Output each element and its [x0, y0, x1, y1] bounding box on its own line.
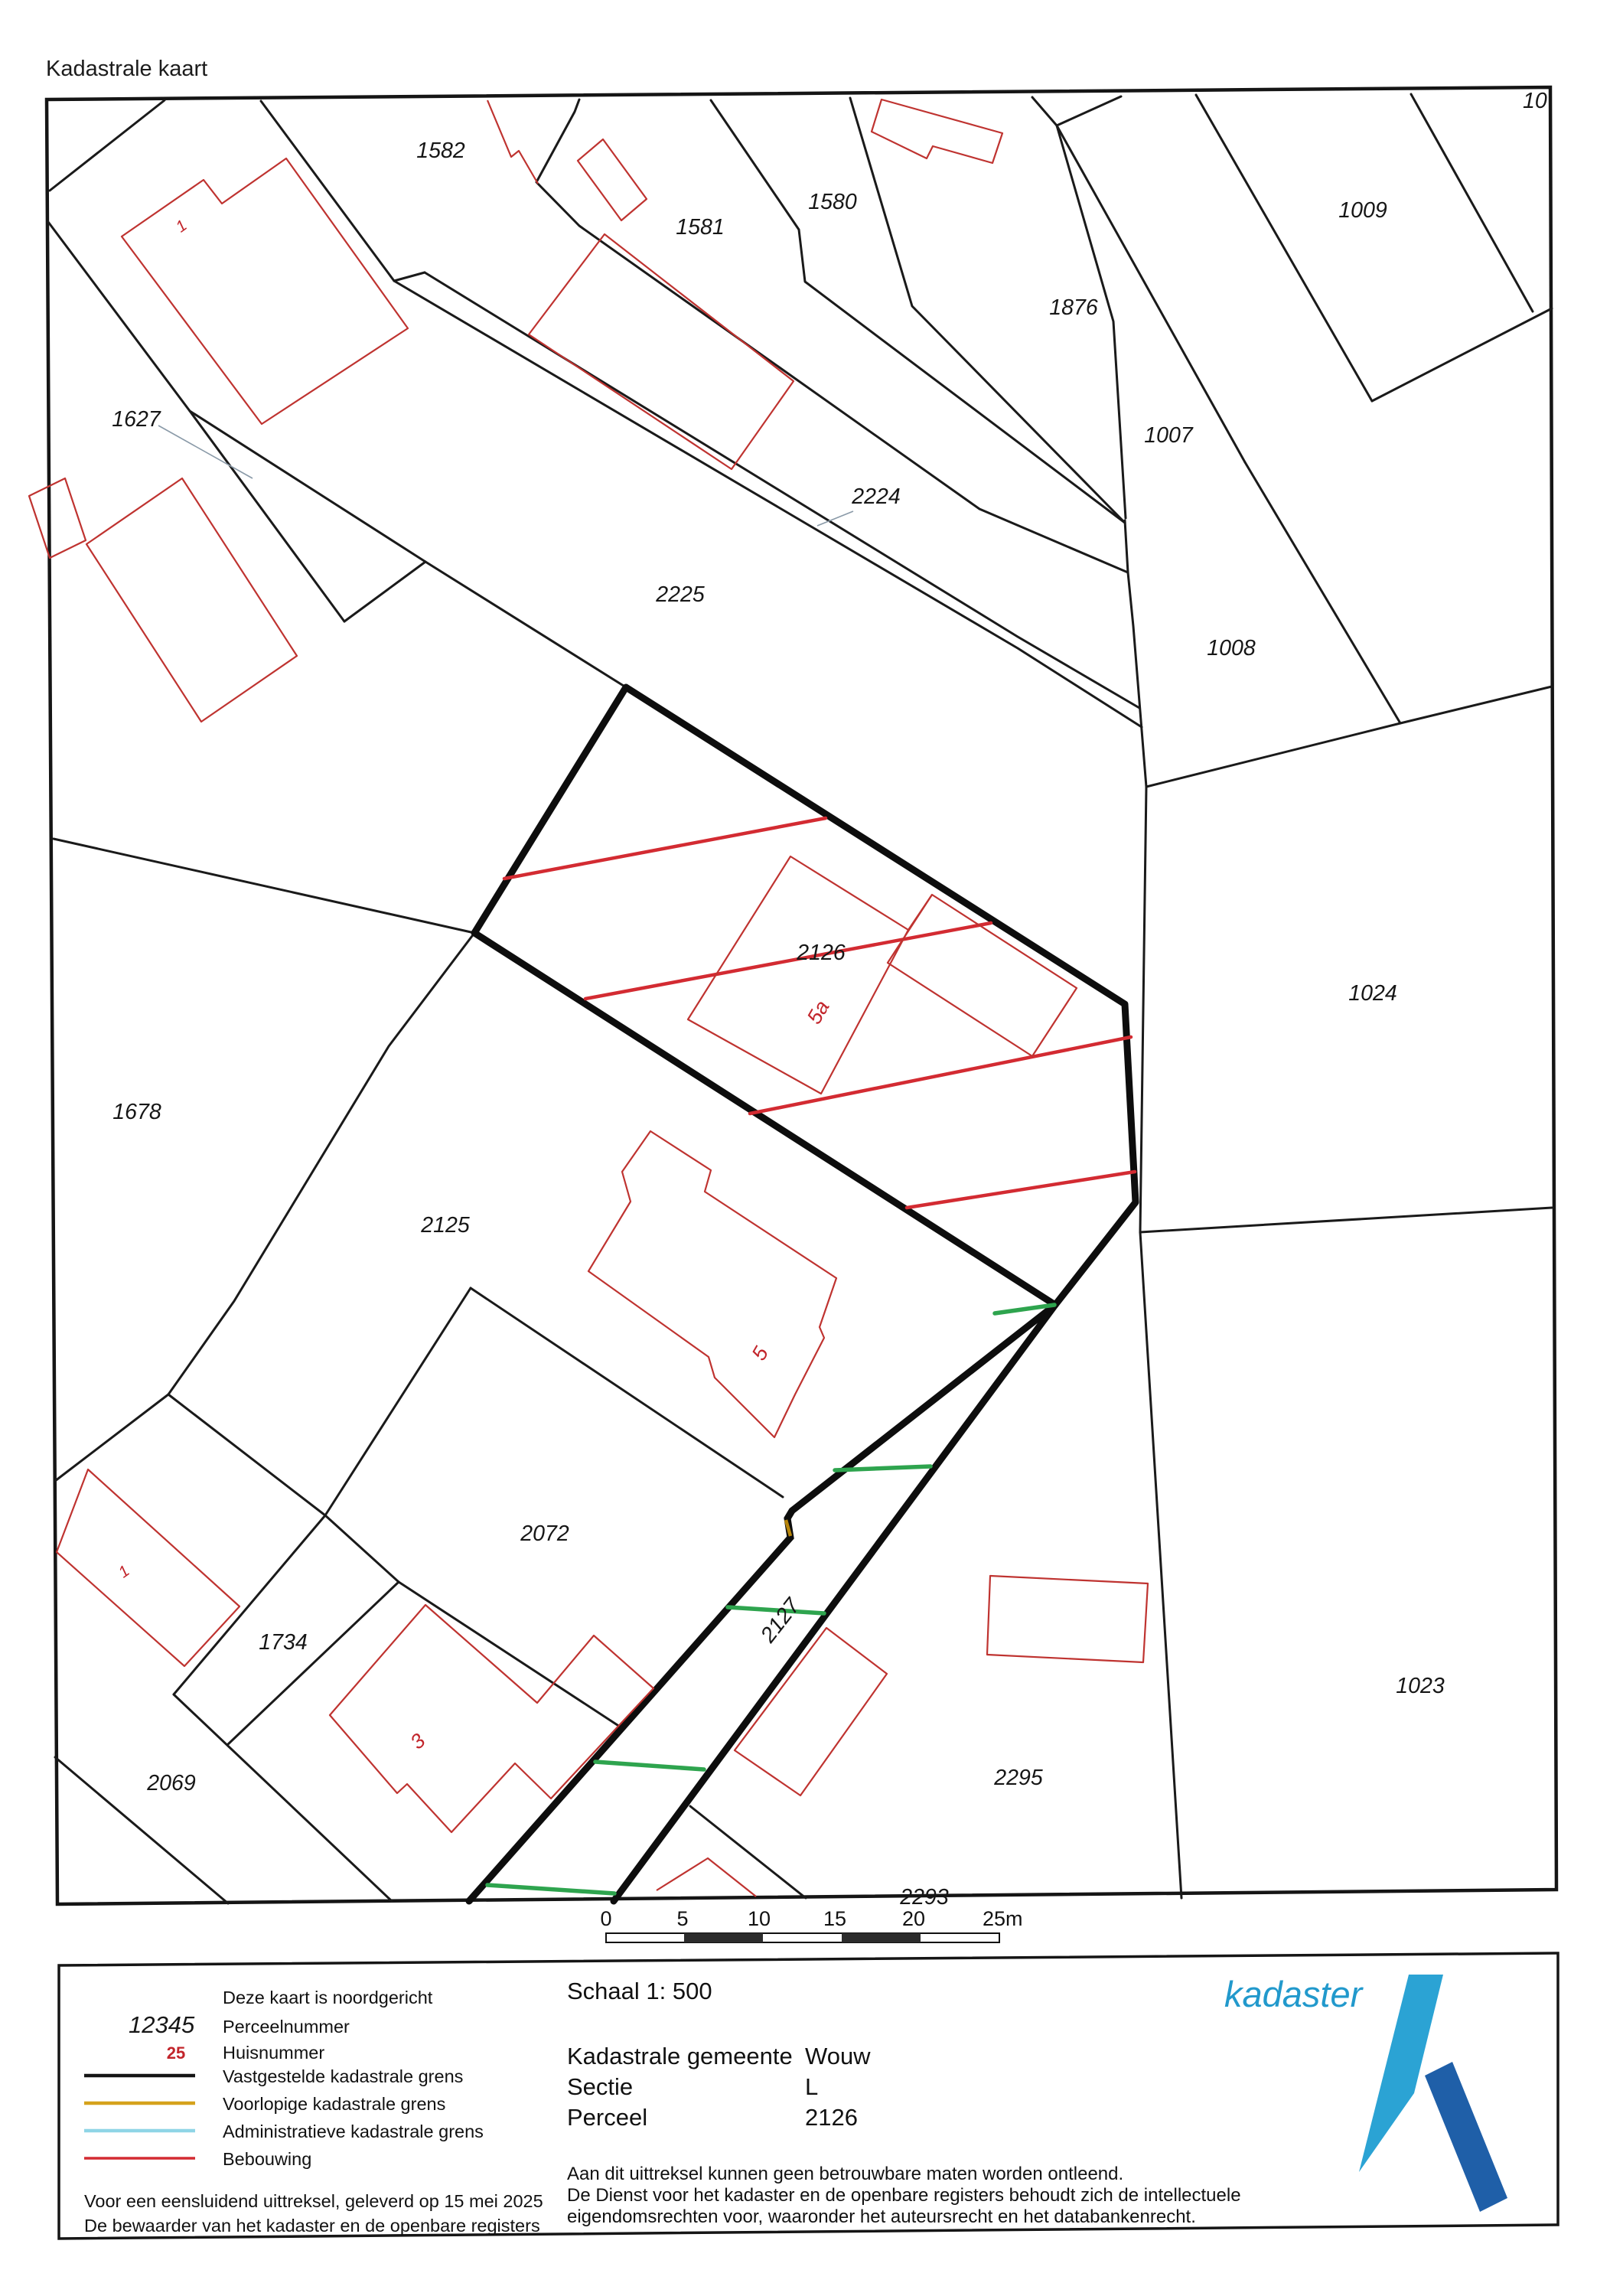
svg-text:2125: 2125 — [420, 1213, 470, 1238]
svg-text:5: 5 — [676, 1907, 688, 1930]
svg-text:2126: 2126 — [796, 941, 846, 965]
svg-text:Sectie: Sectie — [567, 2073, 633, 2100]
svg-text:Deze kaart is noordgericht: Deze kaart is noordgericht — [223, 1988, 433, 2007]
svg-text:25: 25 — [167, 2043, 185, 2063]
svg-text:2072: 2072 — [520, 1521, 569, 1546]
svg-text:Voorlopige kadastrale grens: Voorlopige kadastrale grens — [223, 2094, 445, 2114]
svg-text:Wouw: Wouw — [805, 2043, 871, 2069]
svg-text:20: 20 — [902, 1907, 925, 1930]
svg-text:1580: 1580 — [808, 190, 857, 214]
svg-text:Schaal 1: 500: Schaal 1: 500 — [567, 1978, 712, 2004]
svg-text:Administratieve kadastrale gre: Administratieve kadastrale grens — [223, 2122, 484, 2141]
svg-text:1024: 1024 — [1348, 981, 1396, 1006]
svg-text:Voor een eensluidend uittrekse: Voor een eensluidend uittreksel, gelever… — [84, 2191, 543, 2211]
svg-text:1581: 1581 — [676, 215, 724, 240]
svg-text:2225: 2225 — [655, 582, 705, 607]
svg-text:1023: 1023 — [1396, 1674, 1445, 1698]
svg-text:10: 10 — [1523, 89, 1547, 113]
svg-text:L: L — [805, 2073, 818, 2100]
svg-text:25m: 25m — [983, 1907, 1023, 1930]
svg-text:2293: 2293 — [899, 1885, 949, 1910]
svg-text:1876: 1876 — [1049, 295, 1098, 320]
svg-text:Bebouwing: Bebouwing — [223, 2149, 311, 2169]
svg-text:1734: 1734 — [259, 1630, 307, 1655]
svg-text:eigendomsrechten voor, waarond: eigendomsrechten voor, waaronder het aut… — [567, 2206, 1196, 2227]
svg-text:10: 10 — [748, 1907, 771, 1930]
svg-text:1582: 1582 — [416, 139, 465, 163]
svg-text:kadaster: kadaster — [1224, 1974, 1364, 2014]
svg-text:12345: 12345 — [129, 2011, 195, 2038]
svg-text:Kadastrale gemeente: Kadastrale gemeente — [567, 2043, 793, 2069]
svg-text:2069: 2069 — [146, 1771, 196, 1795]
svg-text:De bewaarder van het kadaster: De bewaarder van het kadaster en de open… — [84, 2216, 540, 2236]
svg-text:Vastgestelde kadastrale grens: Vastgestelde kadastrale grens — [223, 2066, 463, 2086]
svg-text:1009: 1009 — [1338, 198, 1387, 223]
svg-text:15: 15 — [823, 1907, 846, 1930]
svg-text:2126: 2126 — [805, 2104, 858, 2131]
svg-text:2224: 2224 — [851, 484, 900, 509]
svg-text:Kadastrale kaart: Kadastrale kaart — [46, 57, 207, 81]
svg-text:Aan dit uittreksel kunnen geen: Aan dit uittreksel kunnen geen betrouwba… — [567, 2164, 1123, 2184]
svg-text:0: 0 — [600, 1907, 611, 1930]
svg-text:Perceel: Perceel — [567, 2104, 647, 2131]
svg-text:1007: 1007 — [1144, 423, 1194, 448]
svg-text:1627: 1627 — [112, 407, 161, 432]
svg-text:Huisnummer: Huisnummer — [223, 2043, 324, 2063]
svg-text:1678: 1678 — [112, 1100, 161, 1124]
svg-text:Perceelnummer: Perceelnummer — [223, 2017, 350, 2037]
svg-text:2295: 2295 — [993, 1766, 1043, 1790]
svg-text:De Dienst voor het kadaster en: De Dienst voor het kadaster en de openba… — [567, 2185, 1241, 2206]
svg-text:1008: 1008 — [1207, 636, 1256, 660]
